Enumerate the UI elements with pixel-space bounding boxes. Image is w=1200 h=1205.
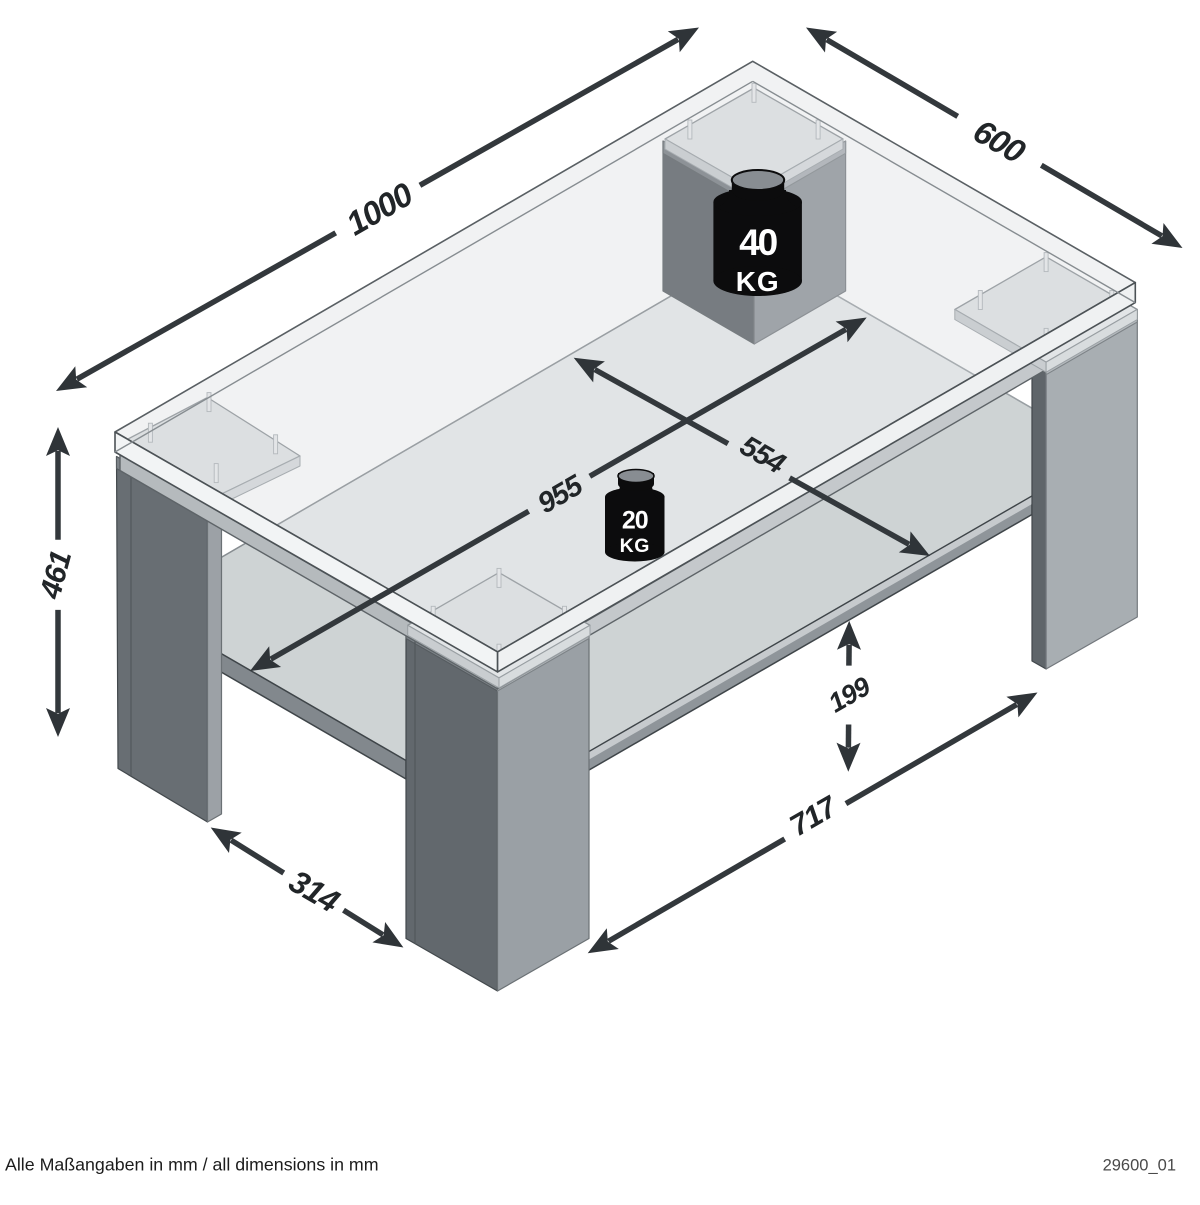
- svg-text:KG: KG: [620, 535, 650, 557]
- svg-text:40: 40: [739, 222, 778, 263]
- svg-text:Alle Maßangaben in mm / all di: Alle Maßangaben in mm / all dimensions i…: [5, 1155, 379, 1175]
- svg-text:KG: KG: [736, 266, 780, 297]
- svg-text:20: 20: [622, 507, 648, 535]
- svg-text:29600_01: 29600_01: [1103, 1157, 1176, 1175]
